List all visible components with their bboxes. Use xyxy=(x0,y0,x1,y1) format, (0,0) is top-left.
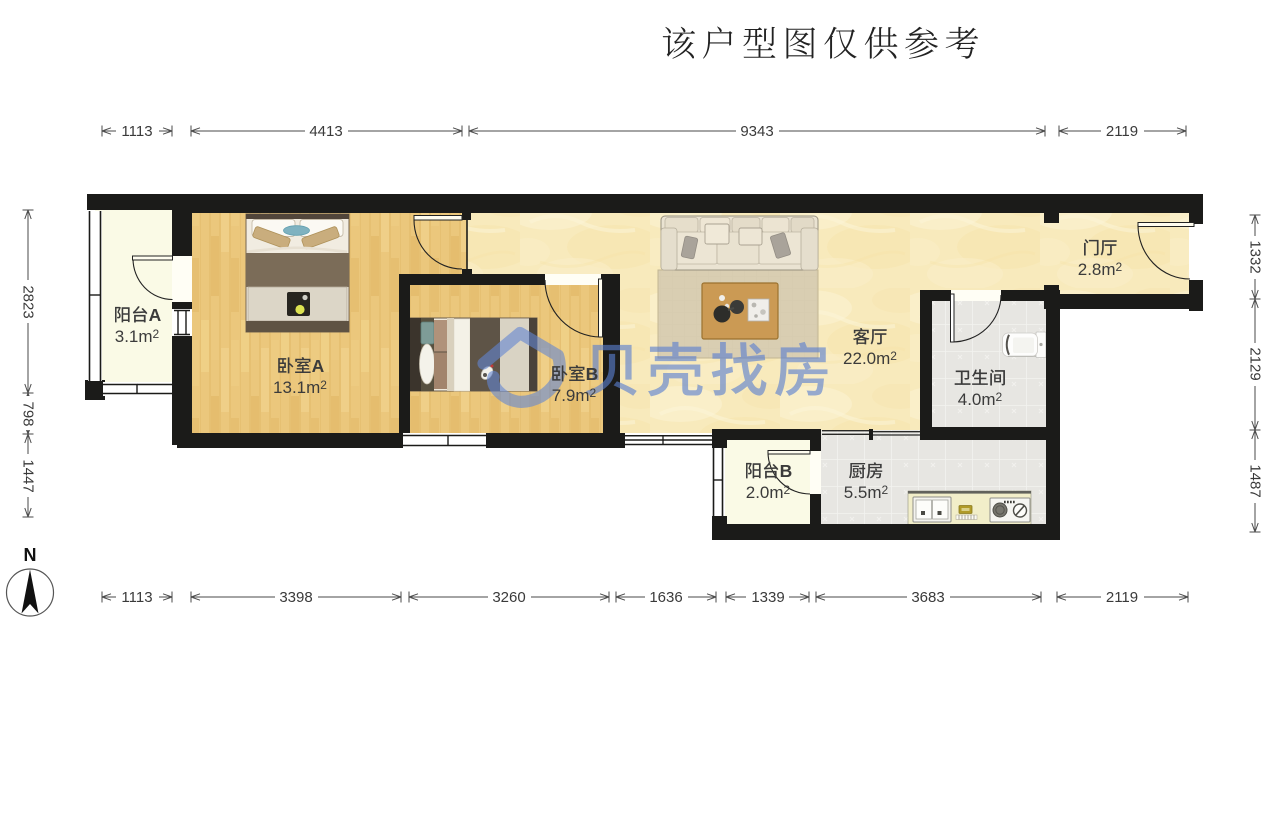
svg-text:B: B xyxy=(780,461,793,481)
svg-text:22.0m2: 22.0m2 xyxy=(843,349,897,368)
svg-text:4413: 4413 xyxy=(309,123,342,140)
svg-text:1332: 1332 xyxy=(1247,240,1264,273)
svg-text:B: B xyxy=(586,364,599,384)
svg-text:3398: 3398 xyxy=(279,589,312,606)
svg-text:3683: 3683 xyxy=(911,589,944,606)
svg-text:798: 798 xyxy=(20,401,37,426)
svg-text:3260: 3260 xyxy=(492,589,525,606)
svg-text:1636: 1636 xyxy=(649,589,682,606)
svg-text:2823: 2823 xyxy=(20,285,37,318)
svg-text:13.1m2: 13.1m2 xyxy=(273,378,327,397)
svg-text:2119: 2119 xyxy=(1106,123,1138,140)
svg-text:A: A xyxy=(149,305,162,325)
svg-text:N: N xyxy=(24,545,37,565)
svg-text:A: A xyxy=(312,356,325,376)
svg-text:1447: 1447 xyxy=(20,459,37,492)
svg-text:1113: 1113 xyxy=(121,589,152,606)
svg-text:9343: 9343 xyxy=(740,123,773,140)
svg-text:2129: 2129 xyxy=(1247,347,1264,380)
svg-text:1487: 1487 xyxy=(1247,464,1264,497)
svg-text:1113: 1113 xyxy=(121,123,152,140)
svg-text:1339: 1339 xyxy=(751,589,784,606)
svg-text:2119: 2119 xyxy=(1106,589,1138,606)
